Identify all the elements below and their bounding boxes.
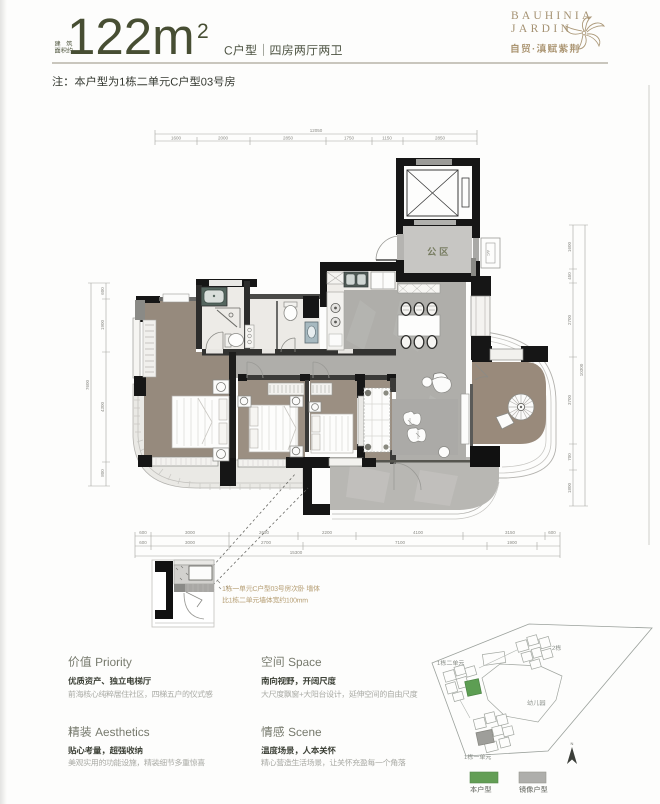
svg-text:7100: 7100 (395, 540, 406, 545)
svg-text:600: 600 (139, 540, 147, 545)
svg-text:12050: 12050 (310, 128, 323, 133)
svg-text:450: 450 (567, 272, 572, 280)
svg-text:15300: 15300 (290, 550, 303, 555)
svg-text:600: 600 (100, 287, 105, 295)
svg-text:3000: 3000 (185, 530, 196, 535)
svg-text:1900: 1900 (507, 540, 518, 545)
svg-text:2850: 2850 (283, 136, 294, 141)
svg-text:3700: 3700 (567, 394, 572, 405)
svg-text:1900: 1900 (100, 319, 105, 330)
svg-text:4100: 4100 (413, 530, 424, 535)
svg-text:1600: 1600 (567, 241, 572, 252)
svg-text:600: 600 (548, 530, 556, 535)
svg-text:10300: 10300 (579, 363, 584, 376)
svg-text:A/C: A/C (486, 250, 490, 256)
svg-text:1750: 1750 (344, 136, 355, 141)
svg-text:1150: 1150 (382, 136, 392, 141)
svg-text:600: 600 (139, 530, 147, 535)
svg-text:1800: 1800 (567, 482, 572, 493)
svg-text:4300: 4300 (100, 401, 105, 412)
svg-text:2700: 2700 (567, 314, 572, 325)
svg-text:N: N (571, 741, 574, 746)
svg-text:1600: 1600 (171, 136, 182, 141)
svg-text:2000: 2000 (218, 136, 229, 141)
svg-text:3000: 3000 (185, 540, 196, 545)
svg-text:2200: 2200 (322, 530, 333, 535)
svg-text:3150: 3150 (505, 530, 516, 535)
svg-text:7600: 7600 (85, 379, 90, 390)
svg-text:2700: 2700 (261, 540, 272, 545)
svg-text:700: 700 (567, 453, 572, 461)
svg-text:2650: 2650 (259, 530, 270, 535)
svg-text:800: 800 (100, 469, 105, 477)
svg-text:2850: 2850 (435, 136, 446, 141)
